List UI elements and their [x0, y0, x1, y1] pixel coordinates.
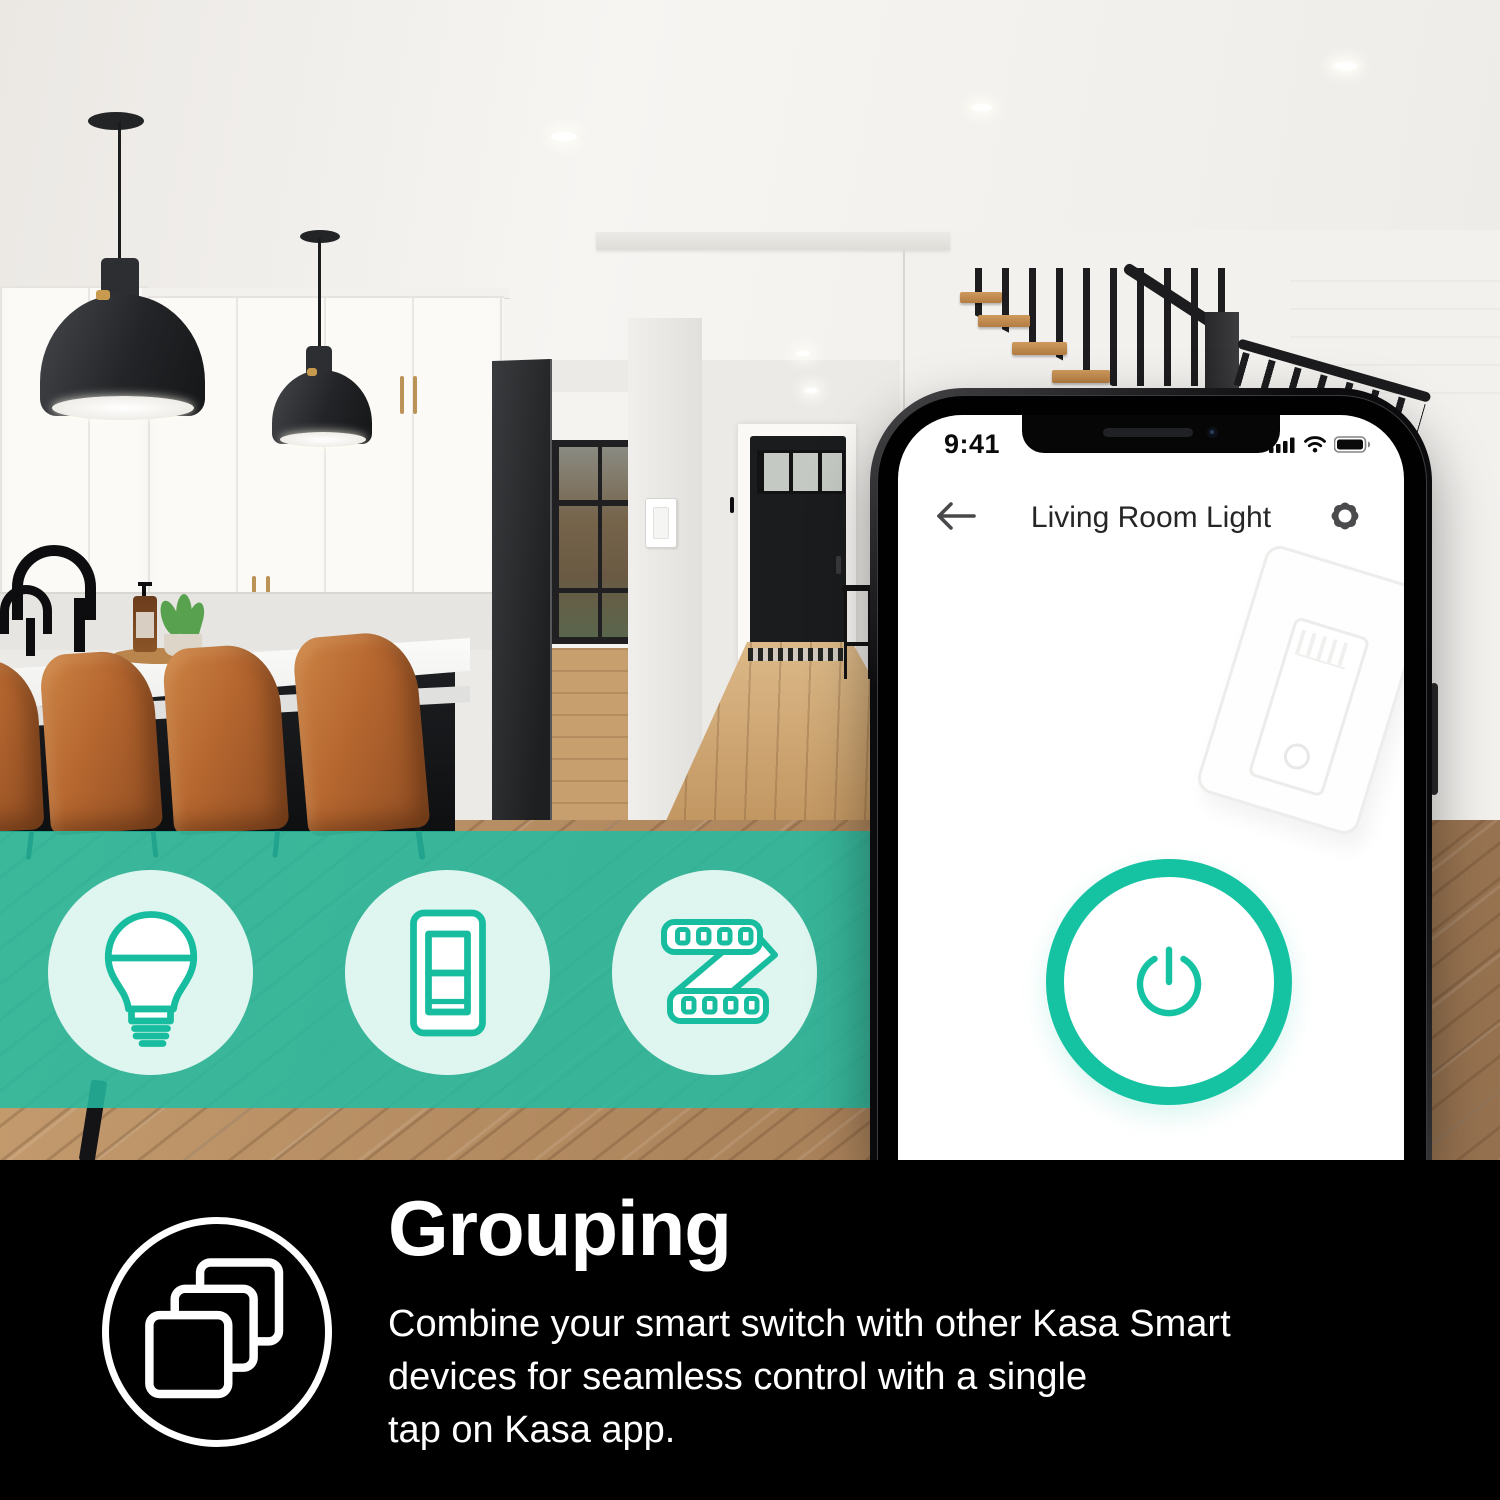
- recessed-light: [1322, 58, 1368, 74]
- striped-rug: [748, 648, 846, 661]
- pillar: [628, 318, 702, 832]
- illustration-indicator: [1281, 740, 1313, 772]
- phone-notch: [1022, 415, 1280, 453]
- cabinet-handle: [400, 376, 404, 414]
- faucet-stem: [74, 598, 85, 652]
- speaker-slot: [1103, 428, 1193, 437]
- room-floor: [549, 648, 631, 834]
- smart-switch-icon: [345, 870, 550, 1075]
- feature-heading: Grouping: [388, 1188, 731, 1270]
- pendant-accent: [96, 290, 110, 300]
- smart-bulb-icon: [48, 870, 253, 1075]
- app-header: Living Room Light: [898, 489, 1404, 549]
- pendant-mount: [88, 112, 144, 130]
- wall-hook: [730, 497, 734, 513]
- battery-icon: [1334, 435, 1372, 454]
- description-line: tap on Kasa app.: [388, 1404, 1231, 1457]
- ceiling-beam: [596, 232, 950, 250]
- stair-newel-post: [1205, 312, 1239, 388]
- description-line: devices for seamless control with a sing…: [388, 1351, 1231, 1404]
- stair-tread: [1052, 370, 1110, 383]
- product-marketing-image: 9:41: [0, 0, 1500, 1500]
- pendant-accent: [307, 368, 317, 376]
- settings-button[interactable]: [1322, 493, 1368, 539]
- stair-tread: [1012, 342, 1067, 355]
- gear-icon: [1322, 493, 1368, 539]
- illustration-vents: [1295, 630, 1352, 670]
- description-line: Combine your smart switch with other Kas…: [388, 1298, 1231, 1351]
- cabinet-handle: [413, 376, 417, 414]
- faucet-sprayer-stem: [26, 618, 35, 656]
- phone-mockup: 9:41: [870, 388, 1432, 1164]
- pendant-cord: [118, 122, 121, 268]
- power-icon: [1126, 939, 1212, 1025]
- illustration-rocker: [1247, 616, 1370, 798]
- layered-squares-glyph: [109, 1224, 325, 1440]
- led-strip-icon: [612, 870, 817, 1075]
- soap-spout: [138, 582, 152, 586]
- feature-band: [0, 831, 1010, 1108]
- front-camera: [1207, 427, 1218, 438]
- wifi-icon: [1302, 435, 1328, 454]
- grouping-layers-icon: [102, 1217, 332, 1447]
- footer-section: Grouping Combine your smart switch with …: [0, 1160, 1500, 1500]
- console-shelf: [845, 642, 871, 646]
- recessed-light: [540, 128, 588, 145]
- bar-stool: [162, 642, 290, 836]
- console-leg: [844, 591, 847, 679]
- pendant-rim: [280, 432, 366, 447]
- recessed-light: [790, 348, 816, 358]
- pendant-rim: [52, 396, 194, 420]
- soap-bottle: [133, 596, 157, 652]
- smart-switch-illustration: [1194, 542, 1404, 838]
- door-handle: [836, 556, 841, 574]
- status-time: 9:41: [944, 429, 1000, 460]
- front-door-windows: [757, 450, 845, 494]
- stair-tread: [960, 292, 1002, 303]
- recessed-light: [962, 100, 1002, 115]
- status-icons: [1269, 435, 1372, 454]
- window-mullion: [598, 447, 602, 637]
- power-toggle-button[interactable]: [1046, 859, 1292, 1105]
- recessed-light: [800, 386, 822, 395]
- front-door: [750, 436, 846, 648]
- soap-label: [136, 612, 154, 638]
- stair-tread: [978, 315, 1030, 327]
- app-screen: 9:41: [898, 415, 1404, 1164]
- feature-description: Combine your smart switch with other Kas…: [388, 1298, 1231, 1457]
- wall-switch-rocker: [653, 507, 669, 539]
- wall-switch: [645, 498, 677, 548]
- pendant-cord: [318, 238, 321, 352]
